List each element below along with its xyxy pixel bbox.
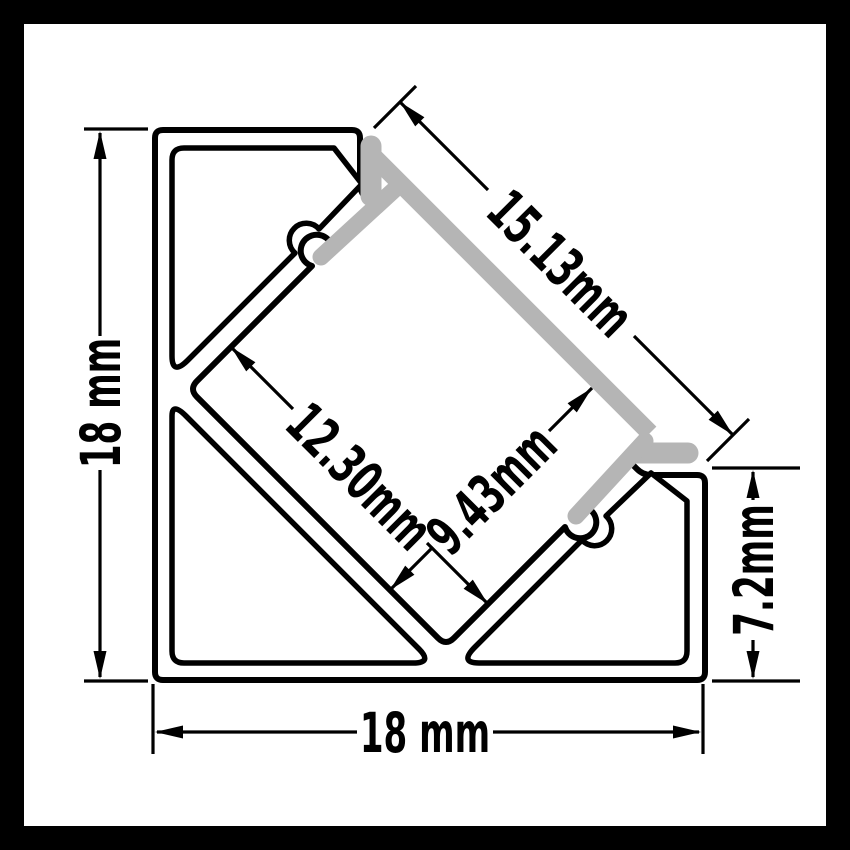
dim-overall-height-label: 18 mm: [69, 338, 133, 468]
dim-overall-width-label: 18 mm: [360, 701, 490, 765]
dim-right-edge-height-label: 7.2mm: [722, 504, 786, 635]
drawing-canvas: 18 mm 18 mm 7.2mm 15.13mm 12.30mm 9.43mm: [0, 0, 850, 850]
profile-cross-section-drawing: 18 mm 18 mm 7.2mm 15.13mm 12.30mm 9.43mm: [0, 0, 850, 850]
